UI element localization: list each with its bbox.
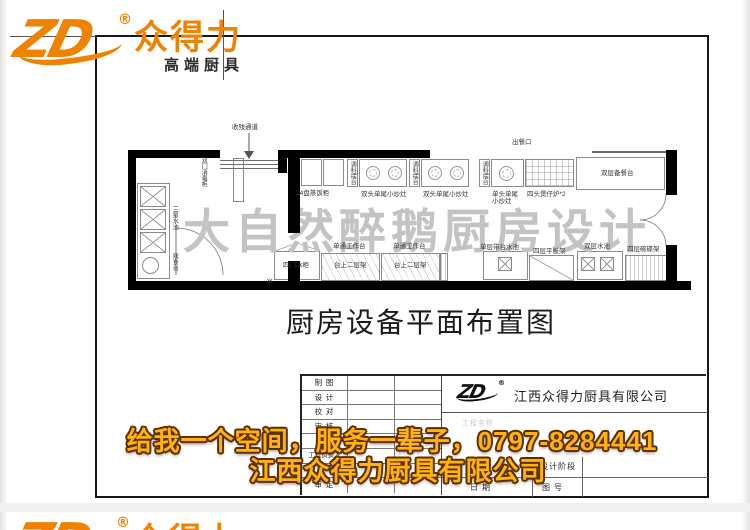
rice-steamer-1: [301, 159, 322, 186]
waste-table-bin: [142, 257, 159, 274]
registered-mark-icon: ®: [116, 515, 130, 530]
label-sterilizer: 双门消毒柜: [200, 157, 206, 187]
logo-tagline: 高端厨具: [164, 54, 244, 75]
ad-company-name: 江西众得力厨具有限公司: [46, 451, 750, 488]
brand-logo-bottom-cropped: ZD ® 众得力: [12, 513, 247, 530]
tb-row-label: 制 图: [302, 376, 348, 390]
logo-brand-name: 众得力: [134, 10, 242, 59]
sink-basin-1: [140, 186, 166, 207]
label-triple-sink: 三星水池: [171, 206, 177, 230]
label-work-table-2: 单通工作台: [393, 243, 426, 250]
label-work-table-1: 单通工作台: [333, 243, 366, 250]
tb-registered-mark-icon: ®: [498, 379, 505, 387]
label-waste-table: 残食台: [171, 253, 177, 271]
sink-basin-2: [140, 209, 166, 230]
label-spice-table-1: 调料摆台: [349, 161, 355, 185]
label-stove-double-1: 双头单尾小炒灶: [361, 191, 407, 198]
tb-row-label: 设 计: [302, 391, 348, 405]
rice-steamer-2: [323, 159, 344, 186]
logo-mark: ZD: [7, 513, 95, 530]
passage-line-1: [220, 160, 278, 161]
passage-line-2: [220, 164, 278, 165]
page-edge-bottom: [0, 503, 750, 512]
logo-brand-name: 众得力: [132, 513, 240, 530]
claypot-stove: [525, 159, 574, 187]
label-flat-rack: 四层平板架: [533, 248, 566, 255]
page-edge-left: [0, 0, 7, 530]
label-stove-single: 单头单尾小炒灶: [492, 191, 522, 205]
label-rice-steamer: 24盘蒸饭柜: [296, 190, 329, 197]
label-double-sink: 双层水池: [584, 243, 610, 250]
label-table-rack-2: 台上二层架: [394, 262, 427, 269]
wall-right-top: [666, 150, 677, 195]
burner-icon: [366, 166, 380, 180]
tb-company-name: 江西众得力厨具有限公司: [514, 386, 668, 405]
label-waste-passage: 收残通道: [232, 124, 258, 131]
watermark-text: 大自然醉鹅厨房设计: [183, 193, 651, 262]
label-spice-table-2: 调料摆台: [411, 161, 417, 185]
label-prep-table: 双层备餐台: [601, 170, 634, 177]
sink-basin-3: [140, 232, 166, 253]
wall-top-mid: [278, 150, 430, 158]
page: { "logo": {"mark": "ZD", "reg": "®", "na…: [0, 0, 750, 530]
burner-icon: [499, 166, 514, 181]
brand-logo: ZD ® 众得力 高端厨具: [14, 10, 249, 78]
wall-left: [128, 150, 136, 290]
passage-line-3: [220, 168, 278, 169]
burner-icon: [388, 166, 402, 180]
wall-right-bottom: [666, 245, 677, 290]
label-food-exit: 出餐口: [512, 139, 532, 146]
wall-pillar-top: [278, 150, 287, 173]
burner-icon: [428, 166, 442, 180]
label-table-rack-1: 台上二层架: [334, 262, 367, 269]
burner-icon: [450, 166, 464, 180]
label-single-sink: 单层带台水池: [480, 244, 519, 251]
tb-row-label: 校 对: [302, 405, 348, 419]
title-block-company-row: ZD ® 江西众得力厨具有限公司: [442, 376, 708, 413]
label-spice-table-3: 调料摆台: [481, 161, 487, 185]
snowflake-icon: ※: [266, 277, 274, 287]
label-claypot-stove: 四头煲仔炉*2: [527, 191, 566, 198]
label-stove-double-2: 双头单尾小炒灶: [423, 191, 469, 198]
label-freezer: 四门冰柜: [283, 262, 309, 269]
plan-title: 厨房设备平面布置图: [286, 301, 556, 341]
registered-mark-icon: ®: [118, 12, 132, 28]
label-dish-rack: 四层碗碟架: [627, 246, 660, 253]
serving-counter-line: [592, 151, 667, 153]
wall-bottom: [128, 281, 691, 290]
